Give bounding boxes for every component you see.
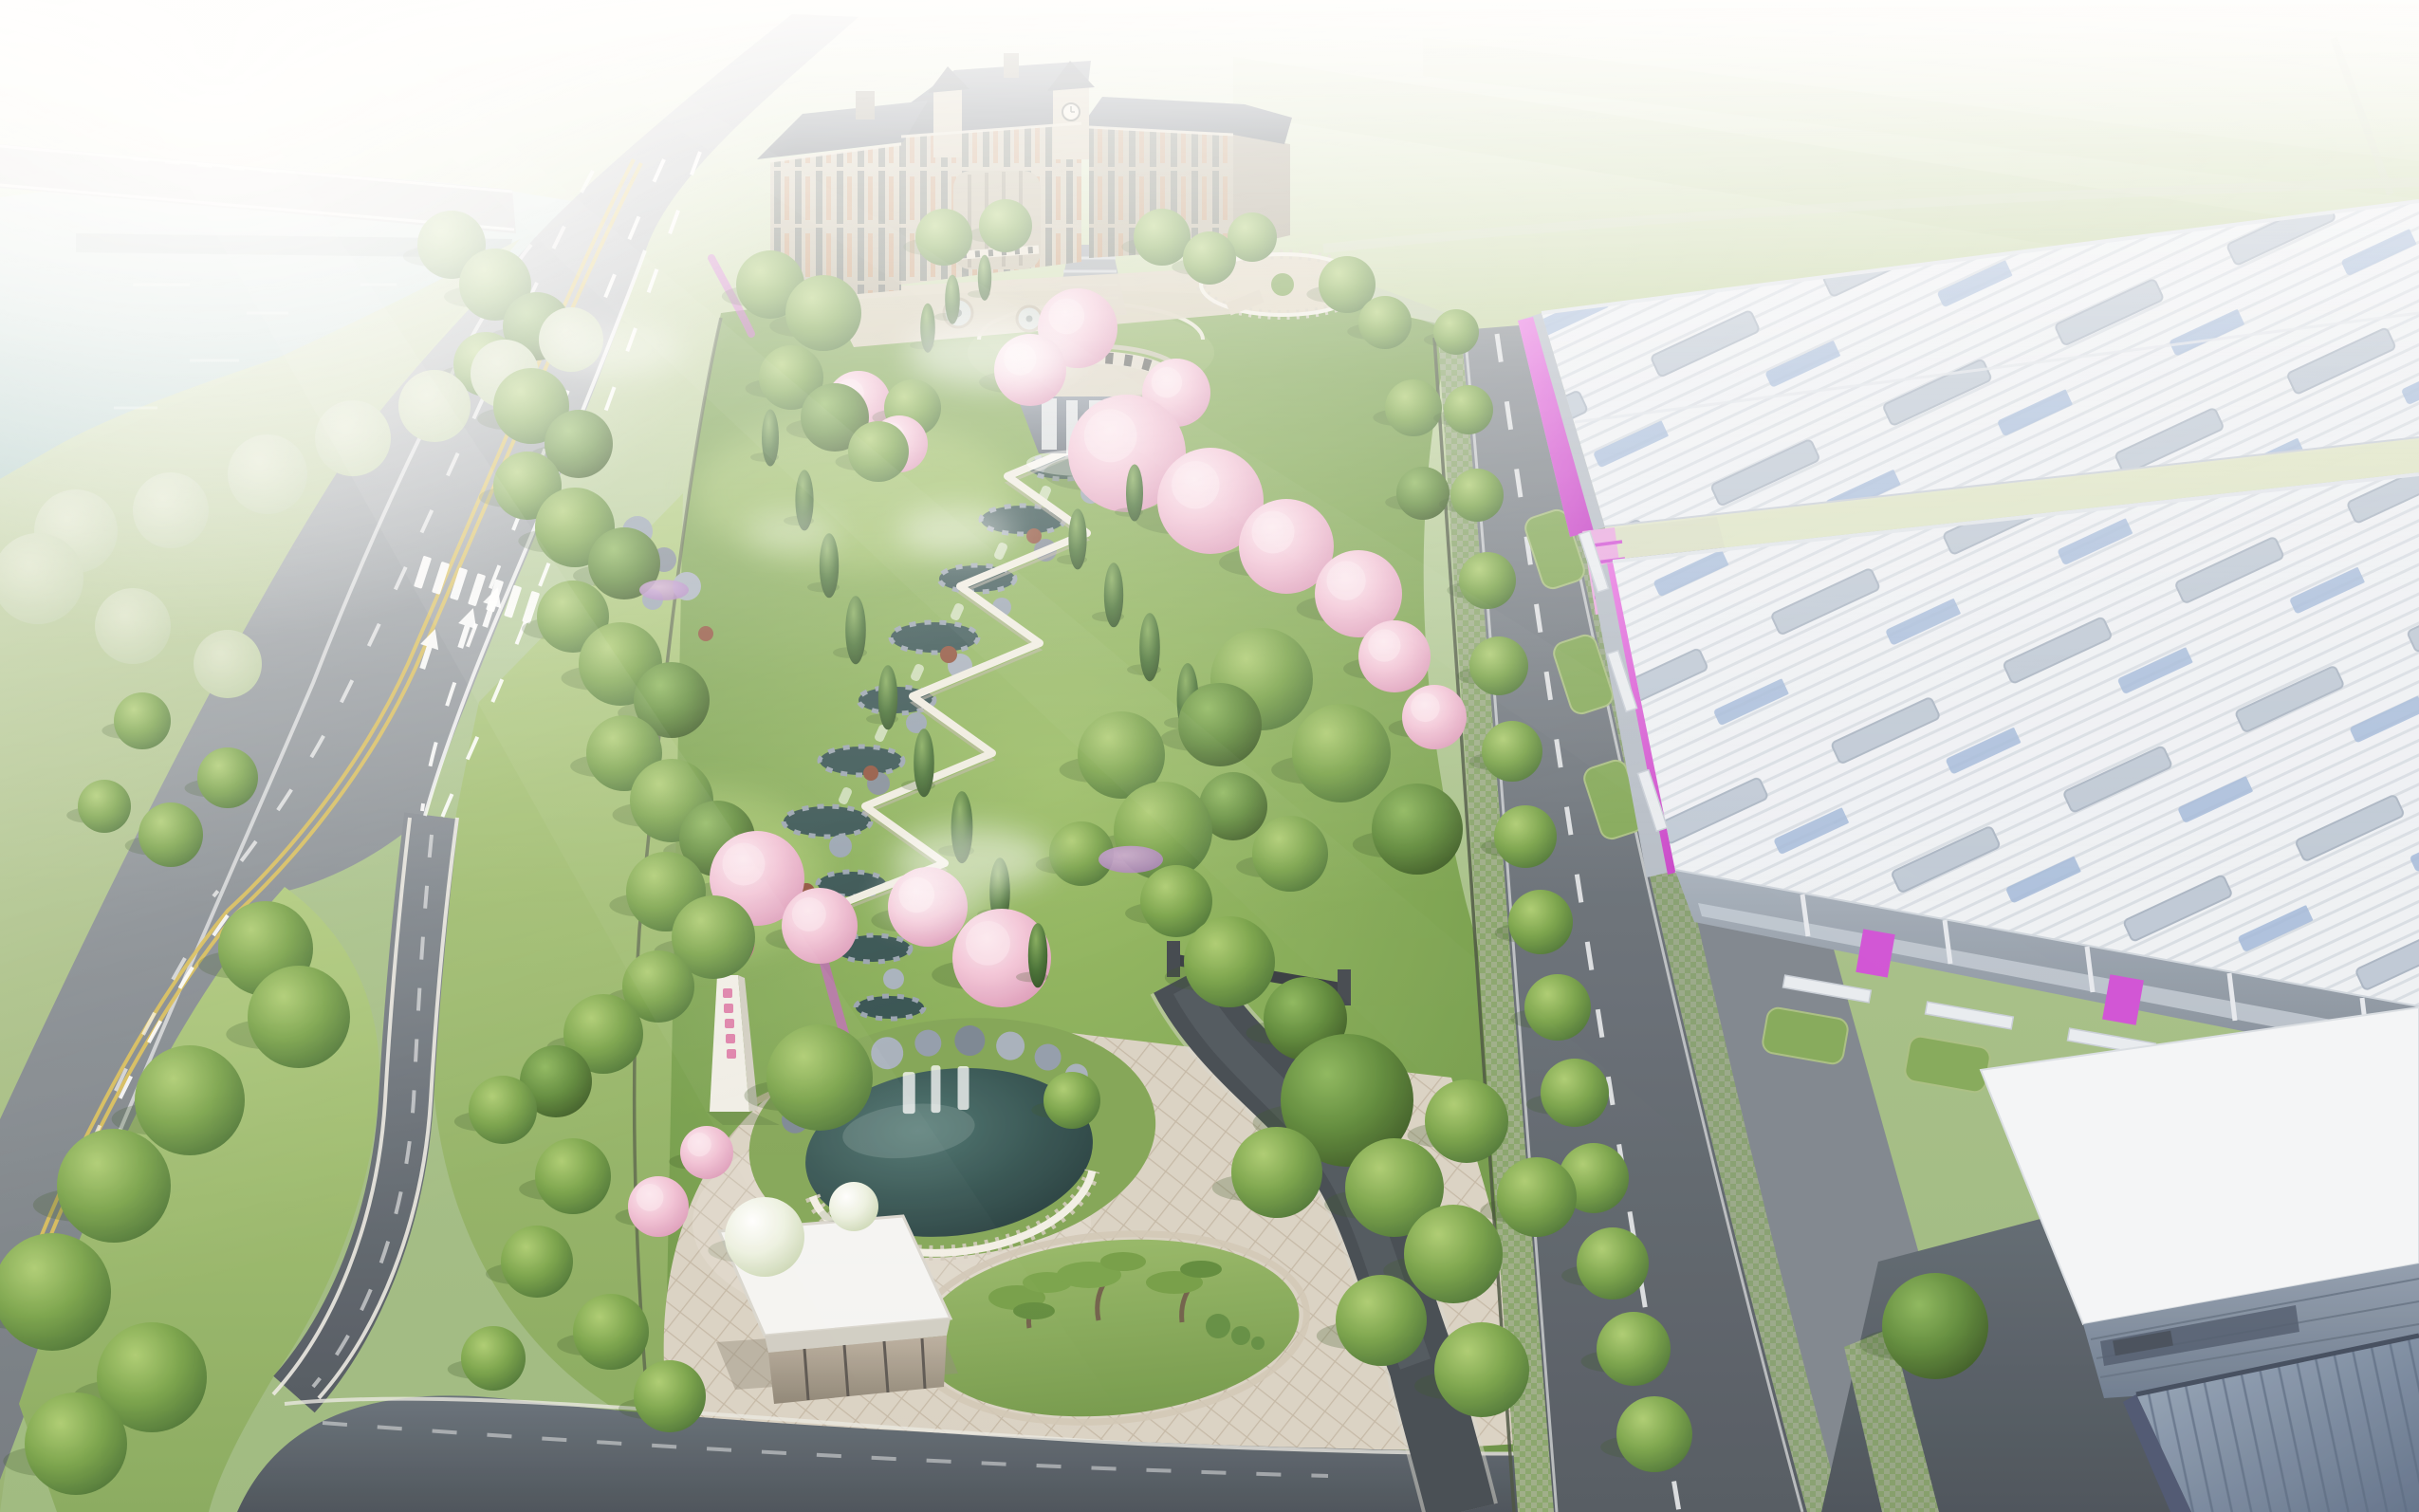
warm-tint xyxy=(0,0,2419,1512)
rendering-canvas: Hazy aerial rendering of a landscaped ca… xyxy=(0,0,2419,1512)
